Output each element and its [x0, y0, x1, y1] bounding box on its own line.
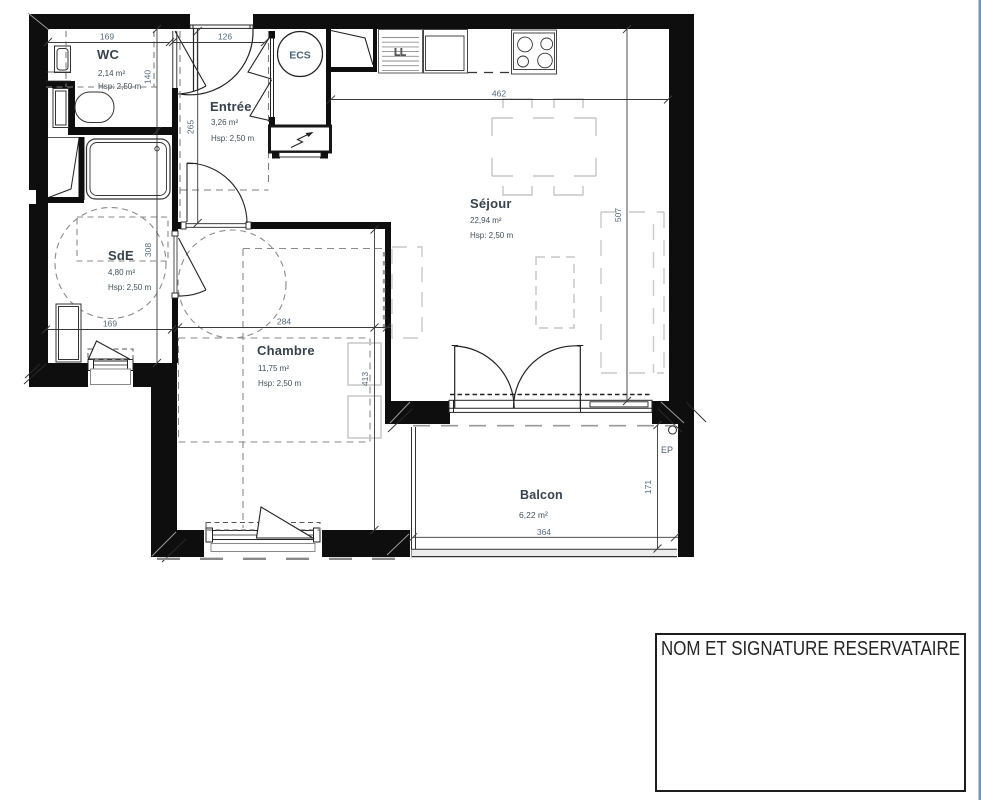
svg-text:284: 284	[277, 317, 291, 327]
svg-text:2,14 m²: 2,14 m²	[98, 69, 125, 78]
svg-text:364: 364	[537, 527, 551, 537]
svg-text:169: 169	[103, 319, 117, 329]
svg-text:NOM ET SIGNATURE RESERVATAIRE: NOM ET SIGNATURE RESERVATAIRE	[661, 637, 960, 660]
svg-text:Hsp: 2,50 m: Hsp: 2,50 m	[258, 379, 301, 388]
svg-text:169: 169	[100, 32, 114, 42]
svg-text:Entrée: Entrée	[210, 99, 252, 114]
svg-text:ECS: ECS	[289, 50, 311, 62]
svg-text:22,94 m²: 22,94 m²	[470, 216, 502, 225]
svg-text:4,80 m²: 4,80 m²	[108, 268, 135, 277]
svg-text:265: 265	[186, 120, 196, 134]
svg-text:Balcon: Balcon	[520, 488, 563, 502]
svg-text:Hsp: 2,50 m: Hsp: 2,50 m	[108, 283, 151, 292]
svg-text:462: 462	[492, 89, 506, 99]
svg-text:140: 140	[143, 70, 153, 84]
svg-text:Séjour: Séjour	[470, 196, 512, 211]
svg-text:3,26 m²: 3,26 m²	[211, 118, 238, 127]
svg-text:Hsp: 2,50 m: Hsp: 2,50 m	[211, 134, 254, 143]
svg-text:171: 171	[643, 480, 653, 494]
svg-text:Chambre: Chambre	[257, 343, 315, 358]
svg-text:EP: EP	[661, 445, 673, 455]
svg-text:LL: LL	[394, 47, 406, 59]
svg-text:WC: WC	[97, 47, 119, 62]
svg-text:Hsp: 2,50 m: Hsp: 2,50 m	[470, 231, 513, 240]
svg-text:11,75 m²: 11,75 m²	[258, 364, 289, 373]
svg-text:507: 507	[613, 208, 623, 222]
svg-text:6,22 m²: 6,22 m²	[519, 510, 548, 520]
svg-text:126: 126	[218, 32, 232, 42]
svg-text:413: 413	[360, 372, 370, 386]
svg-text:308: 308	[143, 243, 153, 257]
